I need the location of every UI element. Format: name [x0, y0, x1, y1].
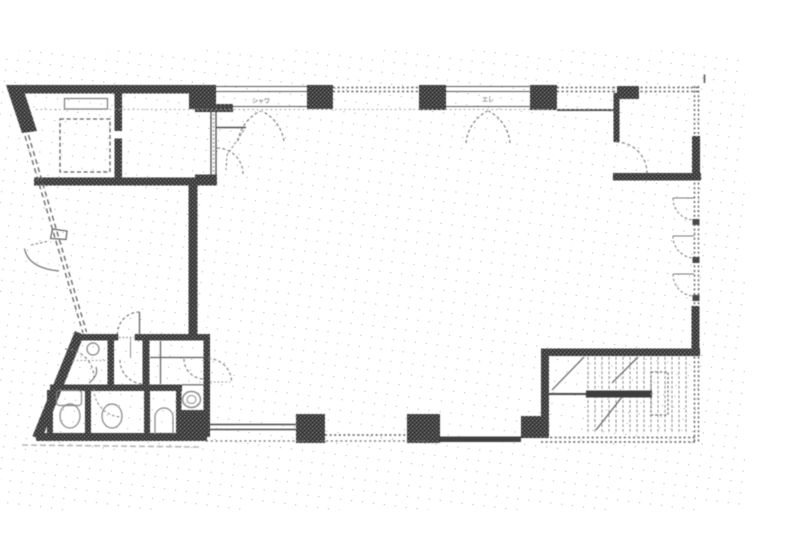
svg-text:エレ: エレ: [482, 97, 494, 104]
svg-text:シャワ: シャワ: [252, 98, 270, 105]
